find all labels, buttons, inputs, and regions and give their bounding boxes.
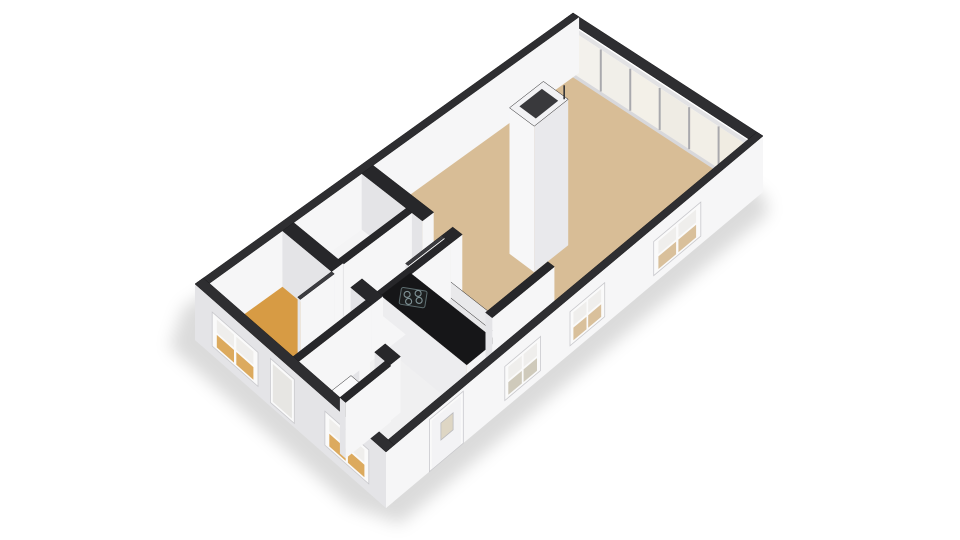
- chimney-face: [510, 108, 535, 272]
- stove-hob-icon: [399, 287, 427, 308]
- exterior-wall-sw-face: [386, 445, 394, 508]
- wall-toilet-east-face: [340, 398, 346, 459]
- wall-toilet-north-b-face: [390, 357, 401, 422]
- door-leaf-face: [298, 297, 301, 355]
- chimney-face: [534, 99, 568, 272]
- floorplan-svg: [0, 0, 960, 540]
- floorplan-3d-view: [0, 0, 960, 540]
